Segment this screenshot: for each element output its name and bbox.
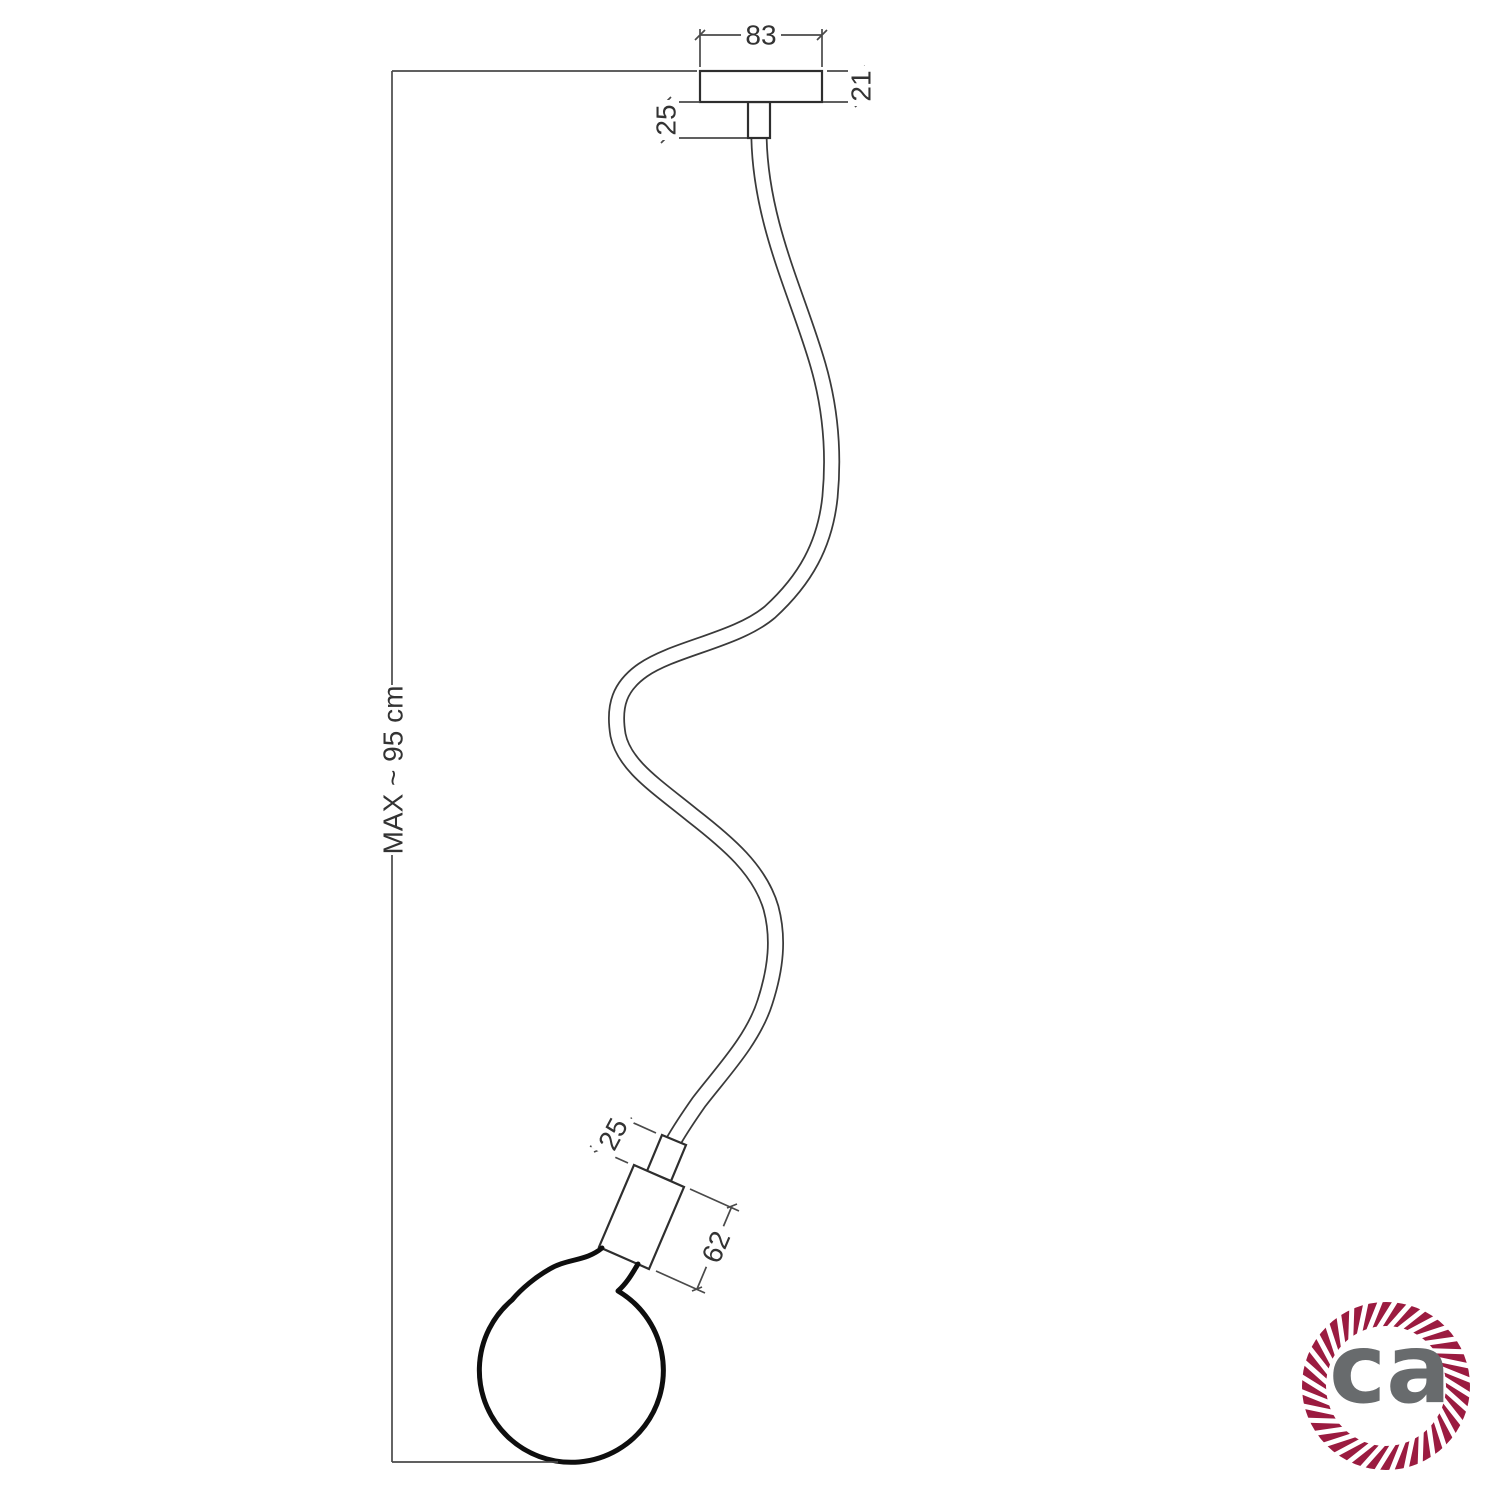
socket-body [599, 1165, 684, 1269]
pendant-lamp-diagram: MAX ~ 95 cm 83 21 25 25 [0, 0, 1500, 1500]
dimension-socket-nipple: 25 [589, 1107, 656, 1163]
dimension-canopy-width: 83 [695, 20, 827, 68]
max-drop-label: MAX ~ 95 cm [378, 686, 409, 855]
dimension-ceiling-nipple: 25 [651, 97, 748, 143]
flexible-tube [616, 138, 831, 1142]
canopy-width-label: 83 [745, 20, 776, 51]
logo-text: ca [1329, 1313, 1451, 1425]
canopy-height-label: 21 [846, 70, 877, 101]
flexible-tube-core [616, 138, 831, 1142]
dimension-canopy-height: 21 [823, 66, 877, 107]
ceiling-canopy [700, 71, 822, 138]
brand-logo: ca [1298, 1298, 1474, 1474]
light-bulb [479, 1248, 663, 1462]
light-bulb-outline [479, 1248, 663, 1462]
technical-drawing-page: MAX ~ 95 cm 83 21 25 25 [0, 0, 1500, 1500]
canopy-nipple [748, 102, 770, 138]
canopy-body [700, 71, 822, 102]
ceiling-nipple-label: 25 [651, 104, 682, 135]
